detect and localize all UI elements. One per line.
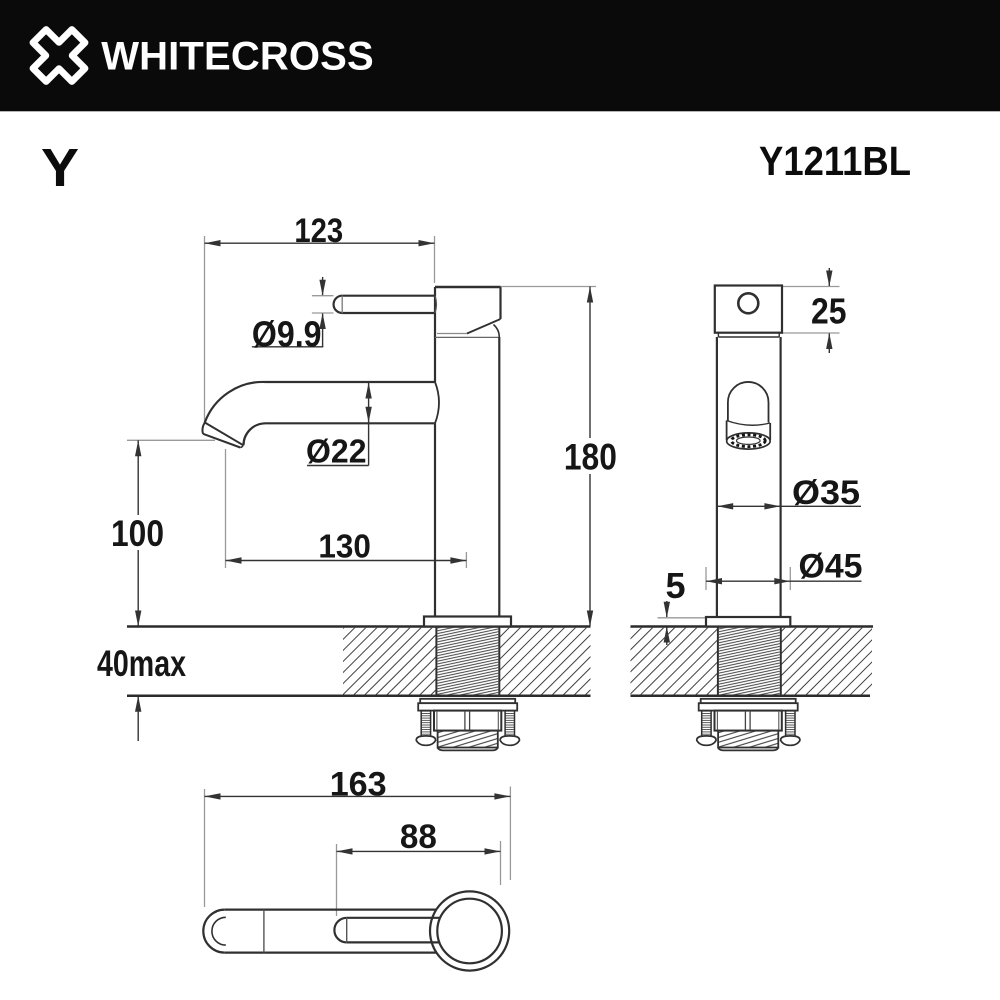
svg-text:Ø9.9: Ø9.9 — [252, 313, 322, 354]
svg-text:Ø22: Ø22 — [306, 434, 367, 471]
svg-text:25: 25 — [811, 291, 847, 332]
svg-text:Ø45: Ø45 — [799, 548, 863, 586]
svg-text:163: 163 — [330, 765, 387, 803]
svg-text:5: 5 — [666, 565, 686, 606]
svg-text:88: 88 — [400, 818, 437, 856]
svg-text:40max: 40max — [97, 643, 186, 684]
svg-text:WHITECROSS: WHITECROSS — [101, 34, 374, 78]
svg-text:130: 130 — [318, 528, 371, 565]
svg-text:Y1211BL: Y1211BL — [759, 138, 911, 184]
svg-text:180: 180 — [564, 437, 617, 478]
svg-text:Ø35: Ø35 — [792, 474, 860, 512]
svg-text:100: 100 — [111, 513, 164, 554]
svg-text:Y: Y — [41, 138, 79, 198]
svg-text:123: 123 — [294, 212, 343, 250]
